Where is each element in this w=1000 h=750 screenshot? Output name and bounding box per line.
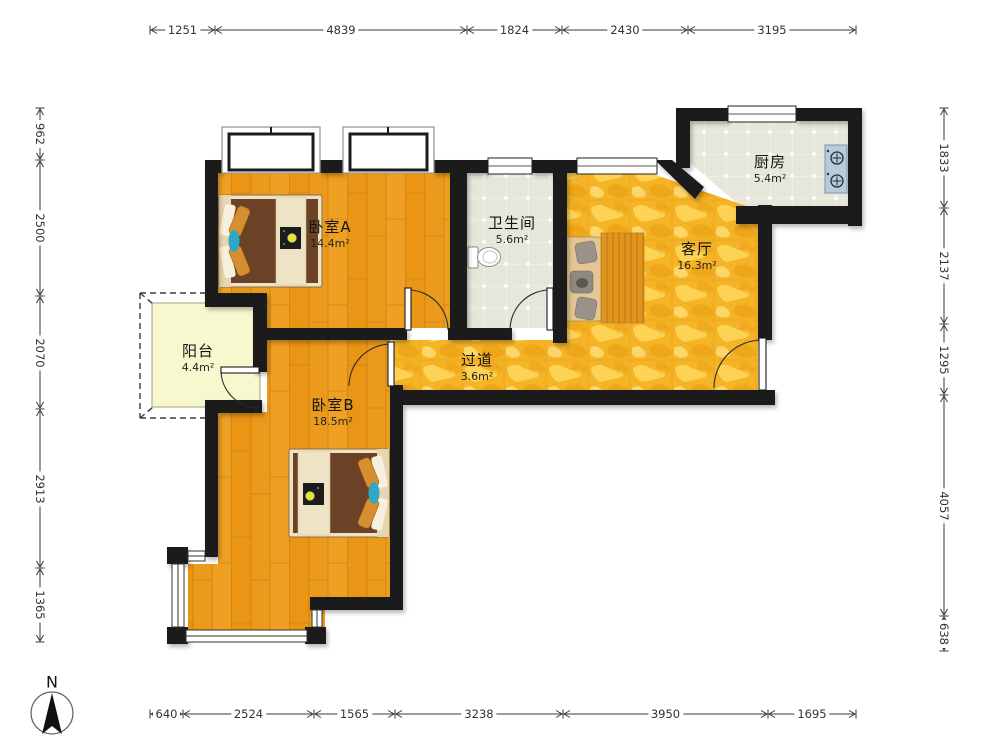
wall-segment	[467, 328, 512, 340]
stove-icon	[825, 145, 847, 193]
window-kitchen	[728, 106, 796, 122]
wall-segment	[736, 206, 862, 224]
window-bathroom	[488, 158, 532, 174]
floor-plan-canvas: 卧室A 14.4m² 卫生间 5.6m² 厨房 5.4m² 客厅 16.3m² …	[0, 0, 1000, 750]
wall-segment	[676, 108, 728, 121]
wall-segment	[448, 328, 467, 340]
wall-segment	[167, 547, 188, 564]
wall-segment	[310, 597, 403, 610]
wall-segment	[553, 160, 567, 343]
north-label: N	[46, 673, 58, 692]
room-floor-balcony	[152, 303, 260, 407]
wall-segment	[450, 160, 467, 328]
toilet-icon	[468, 247, 501, 268]
wall-segment	[205, 160, 218, 300]
window-living-room	[577, 158, 657, 174]
sofa-icon	[562, 237, 602, 321]
wall-segment	[320, 160, 343, 173]
wall-segment	[390, 390, 775, 405]
wall-segment	[205, 407, 218, 557]
bed-a-icon	[219, 195, 322, 287]
north-arrow-icon	[31, 692, 73, 734]
wall-segment	[205, 400, 262, 413]
wall-segment	[758, 205, 772, 340]
room-floor-corridor	[393, 340, 567, 390]
wall-segment	[255, 328, 407, 340]
wall-segment	[565, 160, 577, 173]
bay-window-bedroom-a-2	[343, 127, 434, 173]
wall-segment	[205, 160, 222, 173]
rug-icon	[601, 233, 644, 323]
bed-b-icon	[289, 449, 389, 537]
floor-plan-svg	[0, 0, 1000, 750]
wall-segment	[167, 627, 188, 644]
wall-segment	[390, 385, 403, 610]
bay-window-bedroom-a-1	[222, 127, 320, 173]
wall-segment	[305, 627, 326, 644]
wall-segment	[467, 160, 488, 173]
